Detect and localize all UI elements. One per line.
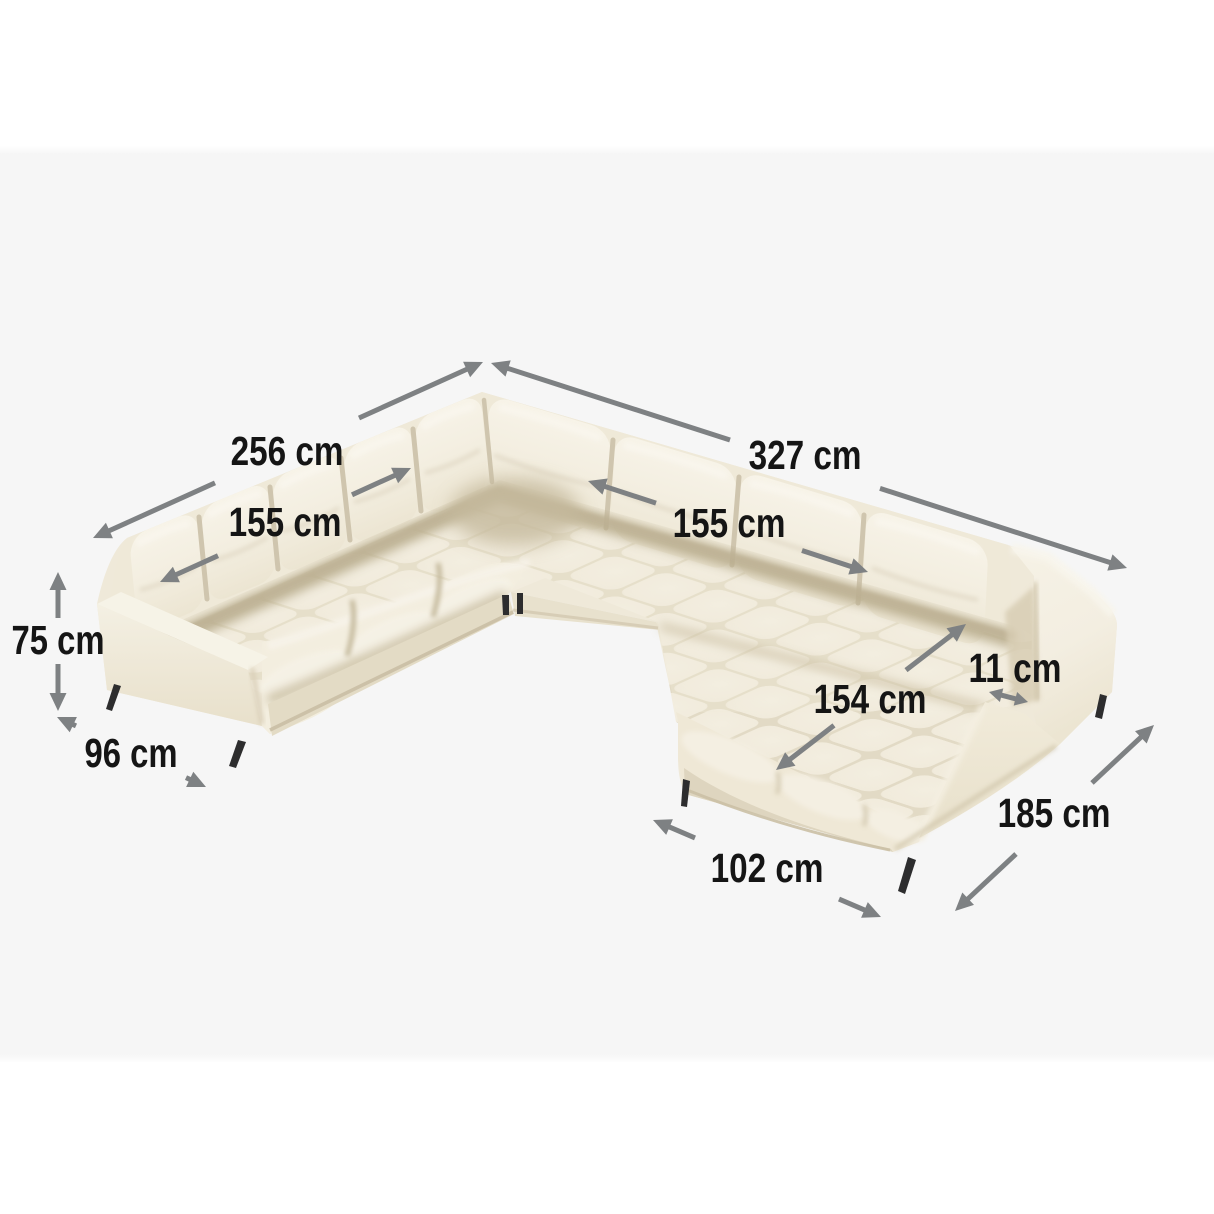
svg-text:327 cm: 327 cm	[749, 432, 862, 478]
svg-text:11 cm: 11 cm	[969, 645, 1062, 691]
svg-text:154 cm: 154 cm	[814, 676, 927, 722]
svg-text:256 cm: 256 cm	[231, 428, 344, 474]
svg-text:155 cm: 155 cm	[673, 500, 786, 546]
svg-text:155 cm: 155 cm	[229, 499, 342, 545]
svg-text:75 cm: 75 cm	[12, 617, 105, 663]
svg-text:185 cm: 185 cm	[998, 790, 1111, 836]
svg-text:96 cm: 96 cm	[85, 730, 178, 776]
svg-text:102 cm: 102 cm	[711, 845, 824, 891]
